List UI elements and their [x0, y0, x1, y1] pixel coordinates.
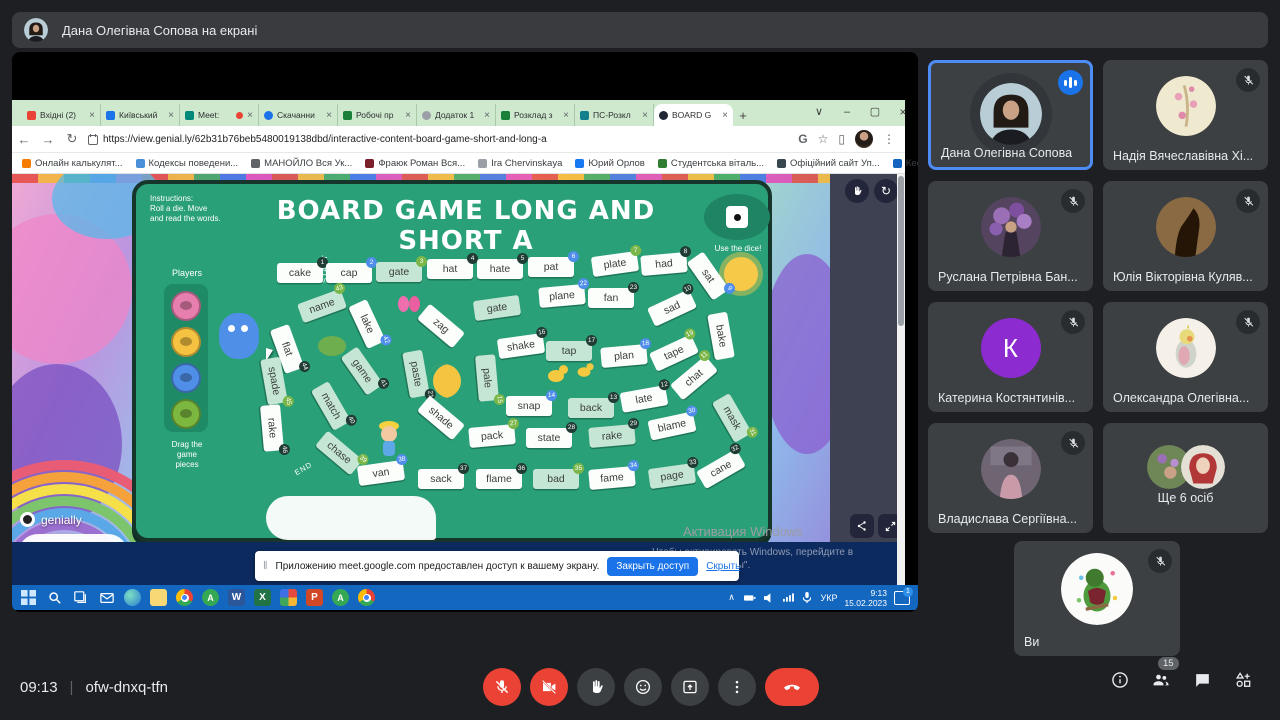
avatar	[1061, 553, 1133, 625]
butterfly-art	[398, 296, 420, 312]
present-button[interactable]	[671, 668, 709, 706]
tray-chevron-icon[interactable]: ∧	[725, 592, 737, 604]
raise-hand-button[interactable]	[577, 668, 615, 706]
tile-number-badge: 40	[344, 413, 359, 428]
board-tile-chase[interactable]: chase39	[315, 431, 363, 476]
bookmark-item-9[interactable]: Кесем Султан - Все...	[893, 158, 918, 169]
tile-number-badge: 34	[628, 460, 640, 472]
bookmark-favicon	[251, 159, 260, 168]
tab-search-button[interactable]: ∨	[805, 100, 833, 124]
tile-number-badge: 30	[685, 405, 698, 418]
browser-tab-7[interactable]: Розклад з×	[496, 104, 575, 126]
camera-off-button[interactable]	[530, 668, 568, 706]
tile-number-badge: 8	[680, 246, 692, 258]
monster-art	[219, 313, 259, 359]
hand-tool-button[interactable]	[845, 179, 869, 203]
board-game-card: Instructions:Roll a die. Moveand read th…	[132, 180, 772, 542]
tab-label: ПС-Розкл	[593, 110, 638, 120]
tab-label: Розклад з	[514, 110, 559, 120]
tile-number-badge: 41	[376, 376, 391, 391]
turtle-art	[318, 336, 346, 356]
chat-button[interactable]	[1190, 668, 1214, 692]
tab-favicon	[27, 111, 36, 120]
avatar: К	[981, 318, 1041, 378]
avatar	[1156, 76, 1216, 136]
screen-share-feed: Вхідні (2)×Київський×Meet:×Скачанни×Робо…	[12, 52, 918, 612]
player-token-2[interactable]	[171, 327, 201, 357]
tile-number-badge: 45	[282, 395, 295, 408]
taskbar-icon-chrome[interactable]	[176, 589, 193, 606]
action-center-icon[interactable]: 1	[894, 591, 910, 605]
bookmark-favicon	[478, 159, 487, 168]
tile-number-badge: 38	[396, 453, 408, 465]
bookmark-label: Офіційний сайт Уп...	[790, 158, 880, 169]
board-tile-plane[interactable]: plane22	[538, 284, 586, 308]
tile-number-badge: 5	[517, 253, 528, 264]
bookmark-item-7[interactable]: Студентська віталь...	[658, 158, 764, 169]
side-panel-icon[interactable]: ▯	[838, 132, 845, 146]
avatar	[1156, 318, 1216, 378]
reload-button[interactable]: ↻	[60, 131, 84, 147]
hide-toast-link[interactable]: Скрыть	[706, 561, 740, 572]
tile-number-badge: 42	[379, 333, 394, 348]
board-instructions: Instructions:Roll a die. Moveand read th…	[150, 194, 250, 224]
browser-tab-strip: Вхідні (2)×Київський×Meet:×Скачанни×Робо…	[12, 100, 905, 126]
end-call-button[interactable]	[765, 668, 819, 706]
back-button[interactable]: ←	[12, 132, 36, 147]
tab-close-icon[interactable]: ×	[247, 110, 253, 121]
bookmark-item-8[interactable]: Офіційний сайт Уп...	[777, 158, 880, 169]
participant-tile-3[interactable]: Руслана Петрівна Бан...	[928, 181, 1093, 291]
dice-icon	[726, 206, 748, 228]
speaking-indicator-icon	[1058, 70, 1083, 95]
battery-icon[interactable]	[744, 592, 756, 604]
dice-button[interactable]	[704, 194, 770, 240]
taskbar-clock[interactable]: 9:1315.02.2023	[844, 588, 887, 608]
genially-logo[interactable]: genially	[20, 512, 82, 527]
participant-tile-6[interactable]: Олександра Олегівна...	[1103, 302, 1268, 412]
toast-text: Приложению meet.google.com предоставлен …	[276, 561, 600, 572]
taskbar-icon-chrome-profile-b[interactable]: A	[332, 589, 349, 606]
board-tile-had[interactable]: had8	[640, 252, 688, 276]
avatar	[981, 197, 1041, 257]
tab-favicon	[185, 111, 194, 120]
board-tile-cap[interactable]: cap2	[326, 263, 372, 283]
tile-number-badge: 27	[508, 418, 520, 430]
bookmark-item-6[interactable]: Юрий Орлов	[575, 158, 644, 169]
tab-favicon	[106, 111, 115, 120]
bookmark-favicon	[777, 159, 786, 168]
taskbar-icon-start[interactable]	[20, 589, 37, 606]
tab-favicon	[501, 111, 510, 120]
tile-number-badge: 6	[568, 251, 579, 262]
muted-mic-icon	[1236, 310, 1260, 334]
profile-avatar[interactable]	[855, 130, 873, 148]
bookmark-item-5[interactable]: Ira Chervinskaya	[478, 158, 562, 169]
browser-tab-1[interactable]: Вхідні (2)×	[22, 104, 101, 126]
board-tile-cane[interactable]: cane32	[696, 449, 746, 489]
board-tile-hat[interactable]: hat4	[427, 259, 473, 279]
participant-name: Дана Олегівна Сопова	[941, 146, 1082, 160]
info-button[interactable]	[1108, 668, 1132, 692]
bookmark-item-2[interactable]: Кодексы поведени...	[136, 158, 239, 169]
share-button[interactable]	[850, 514, 874, 538]
board-tile-fame[interactable]: fame34	[588, 466, 636, 490]
tab-favicon	[264, 111, 273, 120]
taskbar-icon-task-view[interactable]	[72, 589, 89, 606]
board-tile-tap[interactable]: tap17	[546, 341, 592, 361]
cloud-swirl-art	[266, 496, 436, 540]
tile-number-badge: 13	[608, 392, 619, 403]
rotate-button[interactable]: ↻	[874, 179, 898, 203]
player-token-4[interactable]	[171, 399, 201, 429]
more-options-button[interactable]	[718, 668, 756, 706]
bookmark-favicon	[893, 159, 902, 168]
participant-name: Владислава Сергіївна...	[938, 512, 1085, 526]
tile-number-badge: 23	[628, 282, 639, 293]
taskbar-icon-powerpoint[interactable]: P	[306, 589, 323, 606]
toast-grip-icon: ‖	[263, 560, 268, 572]
presenter-avatar	[24, 18, 48, 42]
player-token-3[interactable]	[171, 363, 201, 393]
tab-label: Вхідні (2)	[40, 110, 85, 120]
tile-number-badge: 31	[745, 425, 760, 440]
forward-button[interactable]: →	[36, 132, 60, 147]
avatar	[981, 439, 1041, 499]
tile-number-badge: 33	[687, 456, 699, 468]
board-tile-shake[interactable]: shake16	[497, 333, 545, 359]
participant-tile-4[interactable]: Юлія Вікторівна Куляв...	[1103, 181, 1268, 291]
genially-page-content: Instructions:Roll a die. Moveand read th…	[12, 174, 905, 585]
tab-close-icon[interactable]: ×	[405, 110, 411, 121]
board-tile-state[interactable]: state28	[526, 428, 572, 448]
board-tile-fan[interactable]: fan23	[588, 288, 634, 308]
bookmark-item-4[interactable]: Фраюк Роман Вся...	[365, 158, 465, 169]
participant-name: Юлія Вікторівна Куляв...	[1113, 270, 1260, 284]
board-tile-late[interactable]: late12	[620, 385, 669, 413]
browser-tab-8[interactable]: ПС-Розкл×	[575, 104, 654, 126]
new-tab-button[interactable]: +	[733, 106, 753, 126]
participant-tile-9[interactable]: Ви	[1014, 541, 1180, 656]
board-tile-lake[interactable]: lake42	[348, 299, 386, 349]
tab-favicon	[580, 111, 589, 120]
bookmark-item-1[interactable]: Онлайн калькулят...	[22, 158, 123, 169]
board-tile-pack[interactable]: pack27	[468, 424, 516, 448]
tile-number-badge: 46	[278, 444, 290, 456]
activities-button[interactable]	[1231, 668, 1255, 692]
player-token-1[interactable]	[171, 291, 201, 321]
taskbar-icon-edge[interactable]	[124, 589, 141, 606]
tile-number-badge: 14	[546, 390, 557, 401]
muted-mic-icon	[1236, 189, 1260, 213]
close-window-button[interactable]: ×	[889, 100, 917, 124]
secure-lock-icon	[88, 135, 98, 145]
maximize-button[interactable]: ▢	[861, 100, 889, 124]
bookmark-label: МАНОЙЛО Вся Ук...	[264, 158, 352, 169]
taskbar-icon-search[interactable]	[46, 589, 63, 606]
url-text: https://view.genial.ly/62b31b76beb548001…	[103, 134, 547, 145]
bookmark-favicon	[22, 159, 31, 168]
tile-number-badge: 17	[586, 335, 597, 346]
genially-side-panel	[830, 174, 897, 542]
mic-off-button[interactable]	[483, 668, 521, 706]
right-toolbar: 15	[1108, 668, 1255, 692]
players-label: Players	[162, 268, 212, 278]
browser-toolbar: ← → ↻ https://view.genial.ly/62b31b76beb…	[12, 126, 905, 153]
taskbar-icon-explorer[interactable]	[150, 589, 167, 606]
muted-mic-icon	[1061, 189, 1085, 213]
reactions-button[interactable]	[624, 668, 662, 706]
browser-tab-6[interactable]: Додаток 1×	[417, 104, 496, 126]
participant-count-badge: 15	[1158, 657, 1179, 670]
bookmark-label: Кодексы поведени...	[149, 158, 239, 169]
board-tile-plan[interactable]: plan18	[600, 344, 648, 368]
bookmark-favicon	[575, 159, 584, 168]
board-tile-sack[interactable]: sack37	[418, 469, 464, 489]
board-tile-game[interactable]: game41	[341, 346, 384, 395]
tile-number-badge: 22	[578, 278, 590, 290]
board-tile-sat[interactable]: sat9	[687, 251, 730, 300]
board-tile-pat[interactable]: pat6	[528, 257, 574, 277]
tab-label: Скачанни	[277, 110, 322, 120]
tab-close-icon[interactable]: ×	[484, 110, 490, 121]
board-tile-back[interactable]: back13	[568, 398, 614, 418]
tile-number-badge: 11	[697, 348, 712, 363]
tile-number-badge: 37	[458, 463, 469, 474]
taskbar-icon-chrome-2[interactable]	[358, 589, 375, 606]
browser-tab-5[interactable]: Робочі пр×	[338, 104, 417, 126]
board-tile-hate[interactable]: hate5	[477, 259, 523, 279]
tile-number-badge: 44	[298, 360, 312, 374]
tab-label: Київський	[119, 110, 164, 120]
tile-number-badge: 36	[516, 463, 527, 474]
tile-number-badge: 18	[640, 338, 652, 350]
muted-mic-icon	[1236, 68, 1260, 92]
chrome-browser-window: Вхідні (2)×Київський×Meet:×Скачанни×Робо…	[12, 100, 905, 585]
bookmark-favicon	[658, 159, 667, 168]
others-avatar-2	[1181, 445, 1225, 489]
screen-share-toast: ‖ Приложению meet.google.com предоставле…	[255, 551, 739, 581]
bookmark-label: Фраюк Роман Вся...	[378, 158, 465, 169]
participant-name: Руслана Петрівна Бан...	[938, 270, 1085, 284]
tab-close-icon[interactable]: ×	[168, 110, 174, 121]
bookmark-favicon	[365, 159, 374, 168]
recording-dot-icon	[236, 112, 243, 119]
board-tile-match[interactable]: match40	[311, 381, 351, 431]
tab-close-icon[interactable]: ×	[722, 110, 728, 121]
meeting-code: ofw-dnxq-tfn	[85, 679, 168, 696]
genially-logo-icon	[20, 512, 35, 527]
avatar	[980, 83, 1042, 145]
drag-pieces-label: Drag thegamepieces	[154, 440, 220, 470]
participant-tile-7[interactable]: Владислава Сергіївна...	[928, 423, 1093, 533]
bookmark-label: Студентська віталь...	[671, 158, 764, 169]
muted-mic-icon	[1061, 431, 1085, 455]
board-tile-rake[interactable]: rake46	[260, 404, 284, 452]
girl-art	[378, 426, 400, 456]
participant-name: Ви	[1024, 635, 1172, 649]
end-label: END	[293, 460, 314, 477]
participant-tile-2[interactable]: Надія Вячеславівна Хі...	[1103, 60, 1268, 170]
board-tile-mask[interactable]: mask31	[712, 393, 752, 443]
tile-number-badge: 28	[566, 422, 577, 433]
google-meet-window: Дана Олегівна Сопова на екрані Вхідні (2…	[0, 0, 1280, 720]
others-avatars	[1147, 445, 1225, 489]
minimize-button[interactable]: –	[833, 100, 861, 124]
scrollbar-thumb[interactable]	[898, 176, 904, 326]
bookmarks-bar: Онлайн калькулят...Кодексы поведени...МА…	[12, 153, 905, 174]
muted-mic-icon	[1061, 310, 1085, 334]
system-tray: ∧ УКР 9:1315.02.2023 1	[725, 588, 918, 608]
tab-close-icon[interactable]: ×	[89, 110, 95, 121]
board-tile-bake[interactable]: bake	[707, 312, 735, 361]
board-tile-cake[interactable]: cake1	[277, 263, 323, 283]
tile-number-badge: 19	[683, 327, 698, 342]
tile-number-badge: 43	[333, 281, 347, 295]
tile-number-badge: 15	[493, 394, 505, 406]
tile-number-badge: 35	[573, 463, 584, 474]
board-tile-sad[interactable]: sad10	[647, 289, 697, 327]
participant-tile-5[interactable]: ККатерина Костянтинів...	[928, 302, 1093, 412]
board-tile-gate[interactable]: gate3	[376, 262, 422, 282]
tab-label: Робочі пр	[356, 110, 401, 120]
board-tile-blame[interactable]: blame30	[647, 411, 696, 440]
keyboard-language[interactable]: УКР	[820, 593, 837, 603]
stop-sharing-button[interactable]: Закрыть доступ	[607, 557, 698, 576]
bookmark-star-icon[interactable]: ☆	[818, 132, 829, 146]
activation-watermark-title: Активация Windows	[683, 524, 803, 539]
bookmark-label: Юрий Орлов	[588, 158, 644, 169]
browser-menu-icon[interactable]: ⋮	[883, 132, 895, 146]
board-tile-gate[interactable]: gate	[473, 295, 521, 321]
browser-tab-2[interactable]: Київський×	[101, 104, 180, 126]
windows-taskbar: AWXPA ∧ УКР 9:1315.02.2023 1	[12, 585, 918, 610]
avatar	[1156, 197, 1216, 257]
volume-icon[interactable]	[763, 592, 775, 604]
tab-label: Додаток 1	[435, 110, 480, 120]
tab-close-icon[interactable]: ×	[326, 110, 332, 121]
bookmark-label: Онлайн калькулят...	[35, 158, 123, 169]
participant-name: Катерина Костянтинів...	[938, 391, 1085, 405]
participant-name: Олександра Олегівна...	[1113, 391, 1260, 405]
tile-number-badge: 16	[536, 326, 548, 338]
board-tile-flame[interactable]: flame36	[476, 469, 522, 489]
taskbar-icon-excel[interactable]: X	[254, 589, 271, 606]
board-tile-page[interactable]: page33	[648, 463, 696, 489]
board-tile-pale[interactable]: pale15	[475, 354, 499, 402]
bookmark-item-3[interactable]: МАНОЙЛО Вся Ук...	[251, 158, 352, 169]
tab-close-icon[interactable]: ×	[563, 110, 569, 121]
use-dice-label: Use the dice!	[696, 244, 780, 253]
network-icon[interactable]	[782, 592, 794, 604]
tab-favicon	[422, 111, 431, 120]
board-tile-zag[interactable]: zag	[417, 304, 465, 349]
presenter-banner-text: Дана Олегівна Сопова на екрані	[62, 23, 257, 38]
call-controls	[483, 668, 819, 706]
tile-number-badge: 10	[681, 282, 696, 297]
tile-number-badge: 12	[658, 378, 671, 391]
tile-number-badge: 32	[728, 441, 743, 456]
tray-mic-icon[interactable]	[801, 592, 813, 604]
bookmark-label: Кесем Султан - Все...	[906, 158, 918, 169]
browser-tab-3[interactable]: Meet:×	[180, 104, 259, 126]
bookmark-favicon	[136, 159, 145, 168]
muted-mic-icon	[1148, 549, 1172, 573]
participant-tile-8[interactable]: Ще 6 осіб	[1103, 423, 1268, 533]
board-title: BOARD GAME LONG AND SHORT A	[256, 196, 676, 256]
address-bar[interactable]: https://view.genial.ly/62b31b76beb548001…	[88, 134, 688, 145]
taskbar-icon-office[interactable]	[280, 589, 297, 606]
board-tile-name[interactable]: name43	[297, 289, 347, 324]
board-tile-shade[interactable]: shade	[417, 396, 465, 441]
tab-label: Meet:	[198, 110, 232, 120]
bookmark-label: Ira Chervinskaya	[491, 158, 562, 169]
board-tile-bad[interactable]: bad35	[533, 469, 579, 489]
clock-text: 09:13	[20, 679, 58, 696]
board-tile-paste[interactable]: paste21	[402, 350, 430, 399]
people-button[interactable]: 15	[1149, 668, 1173, 692]
board-tile-snap[interactable]: snap14	[506, 396, 552, 416]
tab-favicon	[659, 111, 668, 120]
tile-number-badge: 29	[628, 418, 640, 430]
notification-badge: 1	[903, 587, 913, 597]
tab-label: BOARD G	[672, 110, 718, 120]
browser-tab-9[interactable]: BOARD G×	[654, 104, 733, 126]
tab-close-icon[interactable]: ×	[642, 110, 648, 121]
taskbar-icon-chrome-profile-a[interactable]: A	[202, 589, 219, 606]
taskbar-icon-mail[interactable]	[98, 589, 115, 606]
board-tile-rake[interactable]: rake29	[588, 424, 636, 448]
duck-art	[548, 370, 564, 382]
taskbar-icon-word[interactable]: W	[228, 589, 245, 606]
meeting-time-and-code: 09:13 | ofw-dnxq-tfn	[20, 679, 168, 696]
tile-number-badge: 3	[416, 256, 427, 267]
presenter-banner: Дана Олегівна Сопова на екрані	[12, 12, 1268, 48]
google-account-icon[interactable]: G	[798, 132, 807, 146]
participant-name: Надія Вячеславівна Хі...	[1113, 149, 1260, 163]
participant-tile-1[interactable]: Дана Олегівна Сопова	[928, 60, 1093, 170]
tab-favicon	[343, 111, 352, 120]
browser-tab-4[interactable]: Скачанни×	[259, 104, 338, 126]
duck-art-2	[578, 367, 591, 377]
participant-name: Ще 6 осіб	[1103, 491, 1268, 505]
